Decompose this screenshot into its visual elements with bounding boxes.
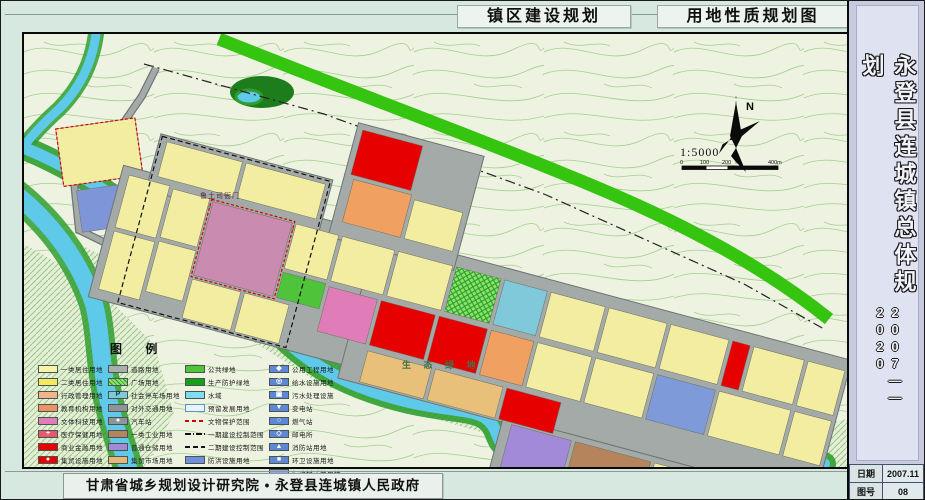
sheet-number-value: 08 <box>883 483 924 500</box>
map-area: 鲁土司衙门 生 态 绿 地 N 1:5000 0 100 200 400m <box>22 32 849 469</box>
planning-map: 鲁土司衙门 生 态 绿 地 N 1:5000 0 100 200 400m <box>24 34 847 467</box>
svg-text:1:5000: 1:5000 <box>680 145 719 159</box>
svg-text:400m: 400m <box>768 160 782 166</box>
date-label: 日期 <box>850 465 883 483</box>
sheet-info-table: 日期 2007.11 图号 08 <box>849 464 924 500</box>
sidebar: 永登县连城镇总体规划 2007——2020 日期 2007.11 图号 08 <box>847 1 924 500</box>
historic-site-label: 鲁土司衙门 <box>200 191 240 200</box>
plan-title-vertical: 永登县连城镇总体规划 <box>856 54 920 299</box>
sheet-number-label: 图号 <box>850 483 883 500</box>
plan-years-vertical: 2007——2020 <box>873 305 903 460</box>
compass-n-label: N <box>746 101 754 113</box>
sheet-title-series: 镇区建设规划 <box>457 5 631 28</box>
sidebar-panel: 永登县连城镇总体规划 2007——2020 <box>856 5 919 461</box>
sheet-number-row: 图号 08 <box>850 483 924 500</box>
date-row: 日期 2007.11 <box>850 465 924 483</box>
date-value: 2007.11 <box>883 465 924 483</box>
svg-text:0: 0 <box>680 160 683 166</box>
svg-text:100: 100 <box>700 160 709 166</box>
sheet-title-map: 用地性质规划图 <box>657 5 849 28</box>
eco-green-label: 生 态 绿 地 <box>402 359 481 370</box>
footer-rule <box>5 471 847 472</box>
pond <box>236 90 262 104</box>
plan-sheet: 镇区建设规划 用地性质规划图 <box>0 0 925 500</box>
svg-text:200: 200 <box>722 160 731 166</box>
credit-box: 甘肃省城乡规划设计研究院 • 永登县连城镇人民政府 <box>63 473 443 499</box>
